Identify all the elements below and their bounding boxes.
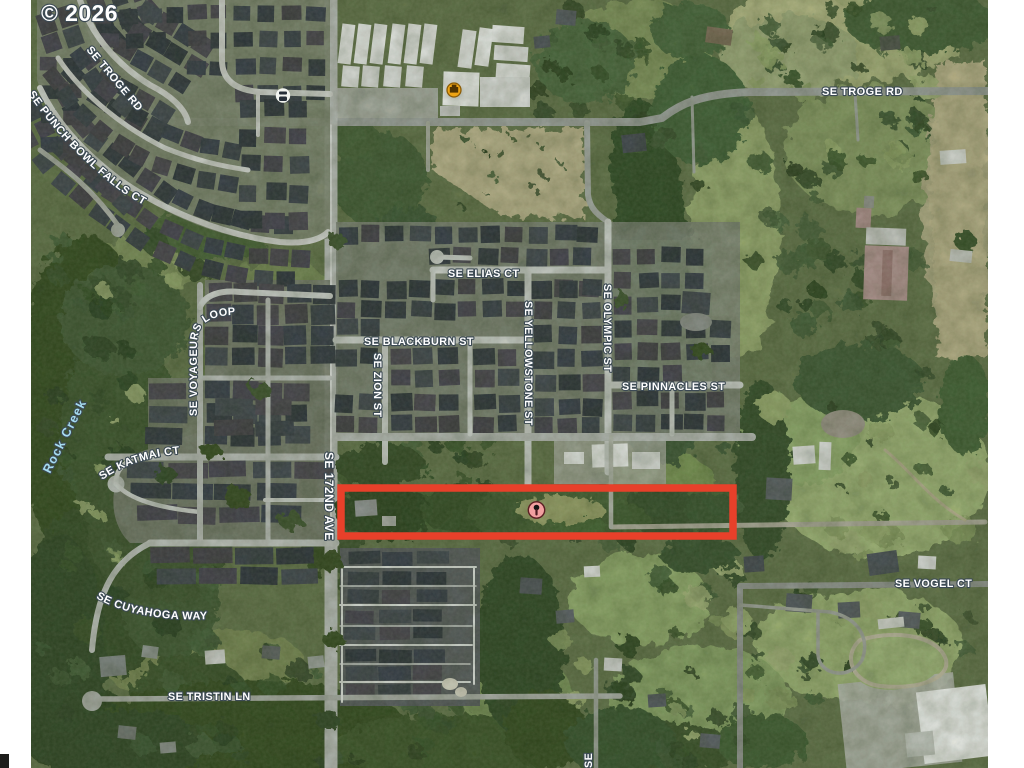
svg-text:SE TROGE RD: SE TROGE RD [822, 86, 903, 98]
svg-text:SE BLACKBURN ST: SE BLACKBURN ST [364, 336, 474, 348]
svg-text:SE OLYMPIC ST: SE OLYMPIC ST [601, 284, 613, 372]
svg-text:SE VOGEL CT: SE VOGEL CT [895, 578, 972, 590]
svg-text:SE YELLOWSTONE ST: SE YELLOWSTONE ST [522, 301, 534, 426]
svg-text:© 2026: © 2026 [41, 0, 118, 26]
svg-text:SE ELIAS CT: SE ELIAS CT [448, 268, 520, 280]
svg-text:SE ZION ST: SE ZION ST [371, 353, 383, 418]
svg-text:SE: SE [583, 753, 595, 768]
svg-text:SE TRISTIN LN: SE TRISTIN LN [168, 691, 251, 703]
svg-text:SE PINNACLES ST: SE PINNACLES ST [622, 381, 725, 393]
svg-text:SE 172ND AVE: SE 172ND AVE [322, 452, 336, 541]
